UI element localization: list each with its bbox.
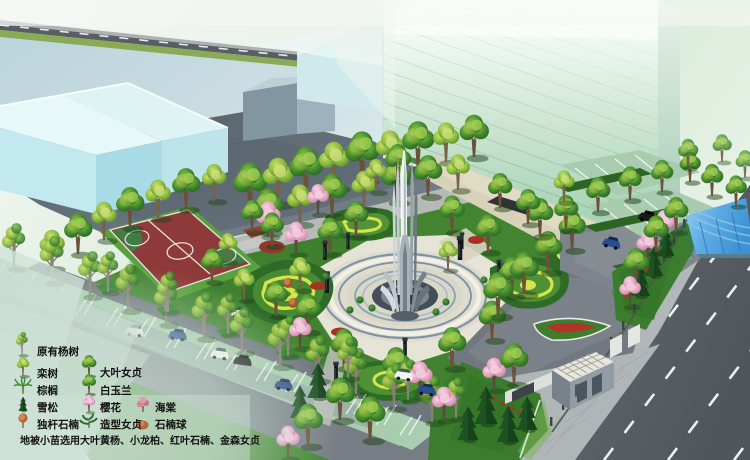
svg-text:原有杨树: 原有杨树 [37,345,79,358]
svg-text:栾树: 栾树 [36,367,58,380]
svg-text:棕榈: 棕榈 [36,384,58,397]
svg-text:地被小苗选用大叶黄杨、小龙柏、红叶石楠、金森女贞: 地被小苗选用大叶黄杨、小龙柏、红叶石楠、金森女贞 [20,434,260,447]
svg-text:白玉兰: 白玉兰 [100,384,132,397]
svg-text:大叶女贞: 大叶女贞 [100,366,142,379]
svg-text:独杆石楠: 独杆石楠 [36,418,79,431]
svg-text:造型女贞: 造型女贞 [100,418,142,431]
svg-text:石楠球: 石楠球 [154,418,187,431]
svg-text:樱花: 樱花 [100,401,121,414]
svg-text:海棠: 海棠 [155,401,176,414]
svg-text:雪松: 雪松 [37,401,58,414]
